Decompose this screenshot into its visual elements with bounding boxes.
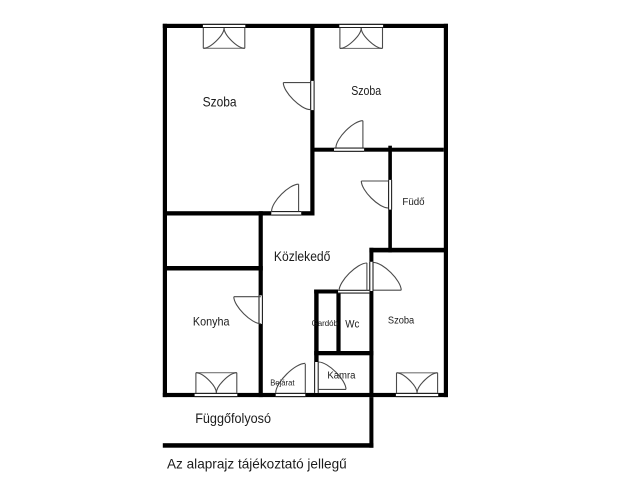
svg-text:Füdő: Füdő <box>402 196 424 208</box>
svg-text:Szoba: Szoba <box>351 83 382 98</box>
svg-text:Bejárat: Bejárat <box>270 378 295 388</box>
svg-text:Gardób: Gardób <box>312 318 339 328</box>
svg-text:Közlekedő: Közlekedő <box>274 249 331 264</box>
svg-text:Szoba: Szoba <box>203 93 237 109</box>
svg-text:Az alaprajz tájékoztató jelleg: Az alaprajz tájékoztató jellegű <box>167 456 347 472</box>
svg-text:Szoba: Szoba <box>388 316 415 327</box>
svg-text:Wc: Wc <box>345 318 360 330</box>
svg-text:Konyha: Konyha <box>193 315 230 329</box>
svg-text:Kamra: Kamra <box>327 371 356 382</box>
svg-text:Függőfolyosó: Függőfolyosó <box>195 410 271 426</box>
